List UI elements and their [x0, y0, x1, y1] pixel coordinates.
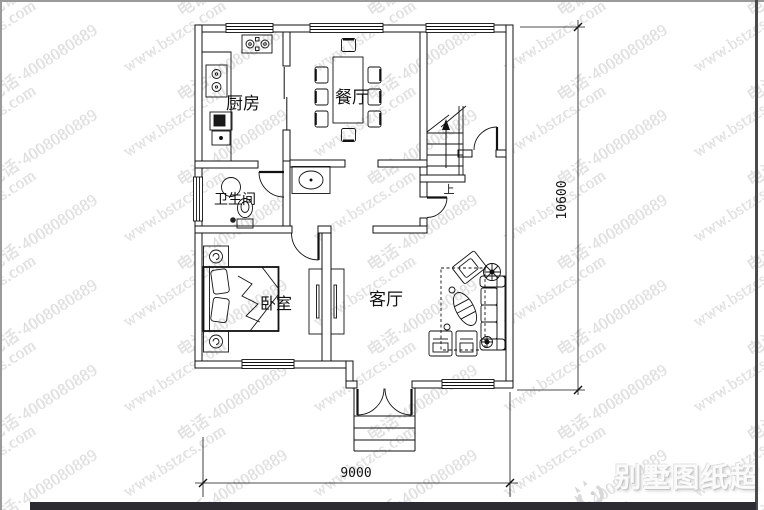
- floor-plan-page: www.bstzcs.com电话·4008080889www.bstzcs.co…: [0, 0, 764, 510]
- wall-stairlobby-left: [458, 150, 472, 157]
- tv-cabinet: [331, 269, 344, 334]
- decor-circle-2: [444, 324, 450, 330]
- wall-kitchen-dining-upper: [283, 32, 290, 66]
- fridge-icon: [210, 112, 232, 145]
- blanket-folds: [238, 276, 260, 322]
- wall-hall-top-right: [378, 160, 427, 167]
- wall-hall-top-left: [290, 160, 345, 167]
- nightstand-bottom: [204, 331, 229, 352]
- up-arrow-icon: [442, 119, 450, 168]
- door-entrance-double: [358, 389, 412, 416]
- wall-right: [506, 25, 513, 388]
- sofa: [480, 276, 505, 350]
- tilted-armchair: [452, 251, 487, 285]
- rug: [441, 268, 485, 350]
- door-bedroom: [292, 233, 319, 260]
- stairs-up-label: 上: [444, 183, 455, 196]
- page-border-right: [755, 0, 758, 510]
- living-label: 客厅: [369, 290, 403, 310]
- window-bedroom-bottom: [242, 360, 294, 369]
- page-border-left: [0, 0, 2, 510]
- door-stair-lobby: [427, 198, 447, 218]
- window-dining-top: [310, 24, 383, 33]
- window-living-bottom: [442, 380, 494, 389]
- door-bathroom: [259, 172, 284, 197]
- stairs: [427, 106, 466, 175]
- plant-icon-top: [484, 264, 501, 281]
- width-dimension-label: 9000: [340, 466, 371, 481]
- room-labels: 厨房 餐厅 卫生间 卧室 客厅 上: [214, 88, 455, 313]
- bottom-bar: [30, 502, 756, 510]
- wall-bedroom-living-divider: [322, 233, 331, 361]
- window-bathroom-left: [194, 177, 203, 221]
- hall-washbasin-icon: [292, 167, 330, 194]
- window-kitchen-top: [226, 24, 273, 33]
- wall-bedroom-top: [195, 226, 292, 233]
- decor-circle-1: [449, 287, 455, 293]
- wardrobe: [309, 269, 322, 334]
- height-dimension: [517, 20, 585, 395]
- living-furniture: [331, 251, 505, 356]
- window-stairs-top: [426, 24, 494, 33]
- floor-drain-icon: [230, 217, 236, 223]
- wall-living-top: [373, 226, 427, 233]
- kitchen-sink-icon: [206, 65, 227, 97]
- coffee-table: [449, 289, 482, 329]
- bathroom-label: 卫生间: [214, 192, 256, 208]
- wall-kitchen-bath: [195, 161, 258, 168]
- stove-icon: [242, 35, 272, 53]
- wall-bottom-living-left: [346, 381, 357, 388]
- kitchen-label: 厨房: [226, 94, 260, 114]
- wall-divider-stairs-upper: [420, 32, 427, 197]
- dining-label: 餐厅: [335, 88, 369, 108]
- side-chair-1: [429, 331, 452, 356]
- plant-icon-bottom: [482, 337, 493, 348]
- door-kitchen-sliding: [284, 67, 287, 130]
- wall-stairlobby-right: [496, 150, 506, 157]
- bedroom-label: 卧室: [260, 294, 292, 313]
- entrance-steps: [354, 388, 415, 451]
- wall-bedroom-door-stub: [318, 226, 331, 233]
- floor-plan-drawing: 9000 10600 厨房 餐厅 卫生间 卧室 客厅 上: [0, 0, 764, 510]
- page-border-top: [0, 0, 764, 2]
- height-dimension-label: 10600: [555, 180, 570, 219]
- wall-bath-right: [283, 161, 290, 233]
- door-stair-room: [474, 127, 497, 150]
- side-chair-2: [456, 331, 477, 356]
- dimensions: [195, 20, 585, 497]
- wall-below-stairs: [420, 175, 465, 182]
- nightstand-top: [204, 246, 229, 267]
